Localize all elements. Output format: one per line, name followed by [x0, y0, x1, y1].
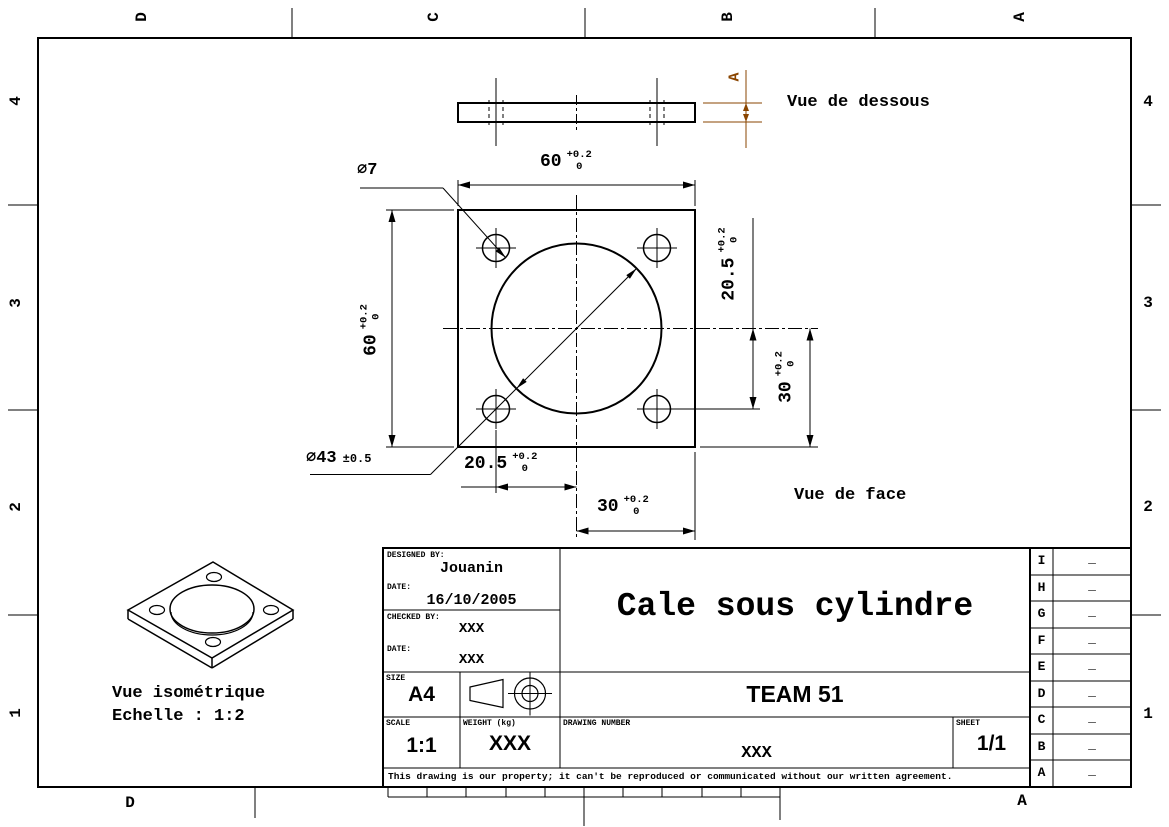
iso-view-geometry: [128, 562, 293, 668]
dim-hole-offset-y: 20.5 +0.20: [717, 227, 740, 300]
zone-number-left: 3: [7, 298, 25, 308]
zone-number-right: 3: [1143, 294, 1153, 312]
revision-letter: A: [1030, 765, 1053, 780]
dim-value: 20.5: [720, 258, 738, 301]
revision-letter: H: [1030, 580, 1053, 595]
section-mark-label: A: [727, 72, 744, 81]
dim-center-hole-dia: ⌀43 ±0.5: [306, 450, 371, 467]
zone-number-right: 2: [1143, 498, 1153, 516]
dim-small-hole-dia: ⌀7: [357, 162, 377, 179]
zone-number-left: 4: [7, 96, 25, 106]
size-value: A4: [383, 683, 460, 707]
designed-date-value: 16/10/2005: [383, 592, 560, 609]
iso-view-label: Vue isométrique: [112, 684, 265, 703]
zone-number-right: 1: [1143, 705, 1153, 723]
dim-center-to-edge-y: 30 +0.20: [774, 351, 797, 403]
designed-by-value: Jouanin: [383, 560, 560, 577]
revision-value: _: [1053, 737, 1131, 752]
front-view-geometry: [443, 195, 818, 540]
dim-value: 60: [540, 153, 562, 171]
dim-value: 60: [362, 334, 380, 356]
dim-hole-offset-x: 20.5 +0.20: [464, 452, 537, 475]
drawing-title: Cale sous cylindre: [560, 588, 1030, 625]
revision-value: _: [1053, 763, 1131, 778]
zone-letter-top: D: [133, 12, 151, 22]
scale-label: SCALE: [386, 719, 410, 728]
dim-center-to-edge-x: 30 +0.20: [597, 495, 649, 518]
sheet-label: SHEET: [956, 719, 980, 728]
dim-overall-height: 60 +0.20: [359, 304, 382, 356]
weight-label: WEIGHT (kg): [463, 719, 516, 728]
dim-value: ⌀7: [357, 162, 377, 179]
revision-value: _: [1053, 551, 1131, 566]
zone-number-left: 1: [7, 708, 25, 718]
drawing-sheet: D C B A D A 4 3 2 1 4 3 2 1 Vue de desso…: [0, 0, 1169, 827]
drawing-subtitle: TEAM 51: [560, 681, 1030, 708]
zone-letter-top: C: [425, 12, 443, 22]
size-label: SIZE: [386, 674, 405, 683]
weight-value: XXX: [460, 732, 560, 756]
revision-letter: D: [1030, 686, 1053, 701]
designed-date-label: DATE:: [387, 583, 411, 592]
front-view-label: Vue de face: [794, 486, 906, 505]
revision-value: _: [1053, 631, 1131, 646]
disclaimer: This drawing is our property; it can't b…: [388, 771, 952, 782]
revision-value: _: [1053, 578, 1131, 593]
dim-value: 20.5: [464, 455, 507, 473]
zone-number-right: 4: [1143, 93, 1153, 111]
revision-letter: B: [1030, 739, 1053, 754]
scale-value: 1:1: [383, 734, 460, 758]
bottom-view-label: Vue de dessous: [787, 93, 930, 112]
revision-value: _: [1053, 684, 1131, 699]
zone-letter-bottom: A: [1017, 792, 1027, 810]
revision-value: _: [1053, 604, 1131, 619]
dim-value: ⌀43: [306, 450, 337, 467]
revision-letter: G: [1030, 606, 1053, 621]
drawing-number-label: DRAWING NUMBER: [563, 719, 630, 728]
zone-letter-bottom: D: [125, 794, 135, 812]
revision-value: _: [1053, 657, 1131, 672]
dim-value: 30: [777, 381, 795, 403]
projection-symbol: [470, 672, 552, 716]
dimension-lines: [310, 180, 818, 540]
zone-letter-top: A: [1011, 12, 1029, 22]
revision-value: _: [1053, 710, 1131, 725]
zone-number-left: 2: [7, 502, 25, 512]
drawing-number-value: XXX: [560, 744, 953, 763]
checked-by-value: XXX: [383, 621, 560, 637]
checked-date-value: XXX: [383, 652, 560, 668]
revision-letter: E: [1030, 659, 1053, 674]
iso-view-scale: Echelle : 1:2: [112, 707, 245, 726]
zone-letter-top: B: [719, 12, 737, 22]
dim-value: 30: [597, 498, 619, 516]
dim-overall-width: 60 +0.20: [540, 150, 592, 173]
graduation-bar: [388, 787, 780, 826]
revision-letter: I: [1030, 553, 1053, 568]
revision-letter: C: [1030, 712, 1053, 727]
section-mark: [703, 70, 762, 148]
revision-letter: F: [1030, 633, 1053, 648]
sheet-value: 1/1: [953, 732, 1030, 756]
bottom-view-geometry: [458, 78, 695, 146]
designed-by-label: DESIGNED BY:: [387, 551, 445, 560]
